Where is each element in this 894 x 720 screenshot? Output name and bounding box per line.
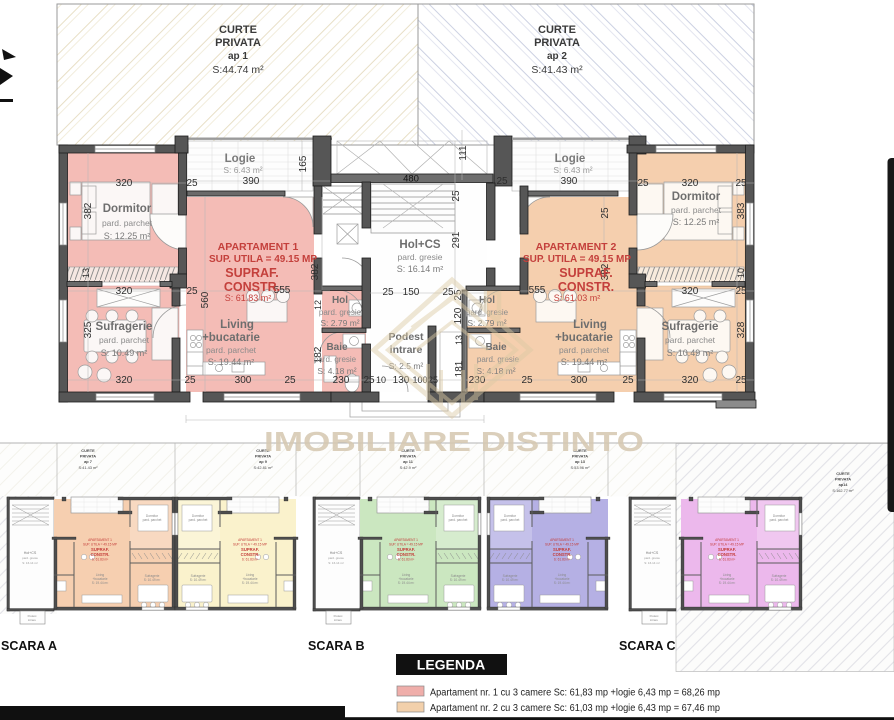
svg-text:Living: Living bbox=[573, 319, 607, 331]
svg-text:390: 390 bbox=[243, 176, 260, 187]
svg-text:25: 25 bbox=[735, 286, 747, 297]
svg-text:PRIVATA: PRIVATA bbox=[80, 454, 96, 459]
svg-text:ap 9: ap 9 bbox=[259, 459, 268, 464]
svg-text:ap 7: ap 7 bbox=[84, 459, 92, 464]
svg-text:CONSTR.: CONSTR. bbox=[558, 280, 614, 294]
svg-text:pard. parchet: pard. parchet bbox=[559, 345, 610, 355]
svg-text:S: 61.83 m²: S: 61.83 m² bbox=[225, 293, 272, 303]
svg-text:25: 25 bbox=[451, 190, 462, 202]
svg-text:Baie: Baie bbox=[485, 342, 507, 353]
svg-text:480: 480 bbox=[403, 174, 419, 185]
svg-text:382: 382 bbox=[310, 263, 321, 280]
svg-text:ap 13: ap 13 bbox=[575, 459, 586, 464]
svg-text:10: 10 bbox=[736, 268, 746, 278]
svg-text:25: 25 bbox=[382, 287, 394, 298]
svg-text:S:42.81 m²: S:42.81 m² bbox=[253, 465, 273, 470]
svg-text:CURTE: CURTE bbox=[836, 471, 850, 476]
svg-text:ap 2: ap 2 bbox=[547, 51, 567, 62]
svg-text:Apartament nr. 2 cu 3 camere S: Apartament nr. 2 cu 3 camere Sc: 61,03 m… bbox=[430, 703, 721, 714]
svg-text:CURTE: CURTE bbox=[538, 24, 576, 36]
svg-text:S: 10.49 m²: S: 10.49 m² bbox=[667, 348, 714, 358]
svg-text:Hol: Hol bbox=[332, 295, 348, 306]
svg-text:+bucatarie: +bucatarie bbox=[555, 332, 613, 344]
svg-text:25: 25 bbox=[521, 375, 533, 386]
svg-text:25: 25 bbox=[186, 178, 198, 189]
svg-text:150: 150 bbox=[403, 287, 420, 298]
svg-text:230: 230 bbox=[333, 375, 350, 386]
svg-text:25: 25 bbox=[284, 375, 296, 386]
svg-text:320: 320 bbox=[116, 375, 133, 386]
svg-text:Apartament nr. 1 cu 3 camere S: Apartament nr. 1 cu 3 camere Sc: 61,83 m… bbox=[430, 688, 721, 699]
svg-text:Sufragerie: Sufragerie bbox=[662, 321, 719, 333]
svg-text:ap 11: ap 11 bbox=[403, 459, 414, 464]
svg-text:PRIVATA: PRIVATA bbox=[835, 477, 851, 482]
svg-text:APARTAMENT 1: APARTAMENT 1 bbox=[218, 241, 299, 253]
svg-text:pard. parchet: pard. parchet bbox=[206, 345, 257, 355]
svg-text:Sufragerie: Sufragerie bbox=[96, 321, 153, 333]
svg-text:S:44.74 m²: S:44.74 m² bbox=[212, 64, 264, 76]
svg-text:560: 560 bbox=[200, 291, 211, 308]
svg-text:300: 300 bbox=[235, 375, 252, 386]
svg-text:320: 320 bbox=[682, 286, 699, 297]
svg-text:25: 25 bbox=[622, 375, 634, 386]
svg-text:SUPRAF.: SUPRAF. bbox=[225, 266, 278, 280]
svg-text:25: 25 bbox=[637, 178, 649, 189]
svg-text:pard. parchet: pard. parchet bbox=[665, 335, 716, 345]
svg-text:320: 320 bbox=[116, 286, 133, 297]
svg-text:S:162.77 m²: S:162.77 m² bbox=[832, 488, 854, 493]
svg-text:APARTAMENT 2: APARTAMENT 2 bbox=[536, 241, 617, 253]
svg-text:25: 25 bbox=[184, 375, 196, 386]
svg-text:SCARA A: SCARA A bbox=[1, 639, 57, 653]
svg-text:LEGENDA: LEGENDA bbox=[417, 657, 485, 673]
svg-text:CURTE: CURTE bbox=[219, 24, 257, 36]
svg-text:25: 25 bbox=[363, 375, 375, 386]
svg-text:13: 13 bbox=[454, 335, 464, 345]
svg-text:325: 325 bbox=[83, 321, 94, 338]
svg-text:pard. gresie: pard. gresie bbox=[319, 308, 362, 317]
svg-text:S: 6.43 m²: S: 6.43 m² bbox=[223, 165, 262, 175]
svg-text:pard. gresie: pard. gresie bbox=[314, 355, 357, 364]
svg-text:SUP. UTILA = 49.15 MP: SUP. UTILA = 49.15 MP bbox=[209, 254, 317, 265]
svg-text:+bucatarie: +bucatarie bbox=[202, 332, 260, 344]
svg-text:300: 300 bbox=[571, 375, 588, 386]
svg-text:S:42.9 m²: S:42.9 m² bbox=[400, 465, 418, 470]
svg-text:382: 382 bbox=[83, 202, 94, 219]
svg-text:SCARA B: SCARA B bbox=[308, 639, 364, 653]
svg-text:S:41.43 m²: S:41.43 m² bbox=[531, 64, 583, 76]
svg-text:10: 10 bbox=[376, 375, 386, 385]
svg-text:S:53.96 m²: S:53.96 m² bbox=[570, 465, 590, 470]
svg-text:120: 120 bbox=[453, 307, 464, 324]
svg-text:pard. parchet: pard. parchet bbox=[671, 205, 722, 215]
svg-text:CURTE: CURTE bbox=[81, 448, 95, 453]
svg-text:IMOBILIARE DISTINTO: IMOBILIARE DISTINTO bbox=[264, 426, 644, 457]
svg-text:320: 320 bbox=[682, 178, 699, 189]
svg-text:390: 390 bbox=[561, 176, 578, 187]
svg-text:pard. parchet: pard. parchet bbox=[102, 218, 153, 228]
svg-text:SCARA C: SCARA C bbox=[619, 639, 675, 653]
svg-text:S: 12.25 m²: S: 12.25 m² bbox=[104, 231, 151, 241]
svg-text:25: 25 bbox=[735, 178, 747, 189]
svg-text:Logie: Logie bbox=[555, 153, 586, 165]
svg-text:SUP. UTILA = 49.15 MP: SUP. UTILA = 49.15 MP bbox=[523, 254, 631, 265]
svg-text:328: 328 bbox=[736, 321, 747, 338]
svg-text:S: 10.49 m²: S: 10.49 m² bbox=[101, 348, 148, 358]
svg-text:S: 12.25 m²: S: 12.25 m² bbox=[673, 217, 720, 227]
svg-text:S: 6.43 m²: S: 6.43 m² bbox=[553, 165, 592, 175]
svg-text:S:41.43 m²: S:41.43 m² bbox=[78, 465, 98, 470]
svg-text:320: 320 bbox=[116, 178, 133, 189]
svg-text:320: 320 bbox=[682, 375, 699, 386]
svg-text:S: 19.44 m²: S: 19.44 m² bbox=[561, 357, 608, 367]
svg-text:Dormitor: Dormitor bbox=[672, 191, 721, 203]
svg-text:S: 4.18 m²: S: 4.18 m² bbox=[317, 366, 356, 376]
svg-text:25: 25 bbox=[186, 286, 198, 297]
svg-text:ap14: ap14 bbox=[839, 482, 849, 487]
svg-text:111: 111 bbox=[458, 145, 469, 161]
svg-text:S: 2.79 m²: S: 2.79 m² bbox=[320, 318, 359, 328]
svg-text:165: 165 bbox=[298, 155, 309, 172]
svg-text:pard. parchet: pard. parchet bbox=[99, 335, 150, 345]
svg-text:Logie: Logie bbox=[225, 153, 256, 165]
svg-text:SUPRAF.: SUPRAF. bbox=[559, 266, 612, 280]
svg-text:383: 383 bbox=[736, 202, 747, 219]
svg-text:PRIVATA: PRIVATA bbox=[534, 37, 580, 49]
svg-text:291: 291 bbox=[451, 231, 462, 248]
svg-text:pard. gresie: pard. gresie bbox=[398, 252, 443, 262]
svg-text:Living: Living bbox=[220, 319, 254, 331]
svg-text:Dormitor: Dormitor bbox=[103, 203, 152, 215]
svg-text:S: 16.14 m²: S: 16.14 m² bbox=[397, 264, 444, 274]
svg-text:CONSTR.: CONSTR. bbox=[224, 280, 280, 294]
svg-text:PRIVATA: PRIVATA bbox=[215, 37, 261, 49]
svg-text:ap 1: ap 1 bbox=[228, 51, 248, 62]
svg-text:S: 61.03 m²: S: 61.03 m² bbox=[554, 293, 601, 303]
svg-text:555: 555 bbox=[529, 285, 546, 296]
svg-text:25: 25 bbox=[496, 176, 508, 187]
svg-text:S: 19.44 m²: S: 19.44 m² bbox=[208, 357, 255, 367]
svg-text:25: 25 bbox=[735, 375, 747, 386]
svg-text:Baie: Baie bbox=[326, 342, 348, 353]
svg-text:13: 13 bbox=[81, 268, 91, 278]
svg-text:Hol+CS: Hol+CS bbox=[399, 239, 441, 251]
svg-text:25: 25 bbox=[600, 207, 611, 219]
